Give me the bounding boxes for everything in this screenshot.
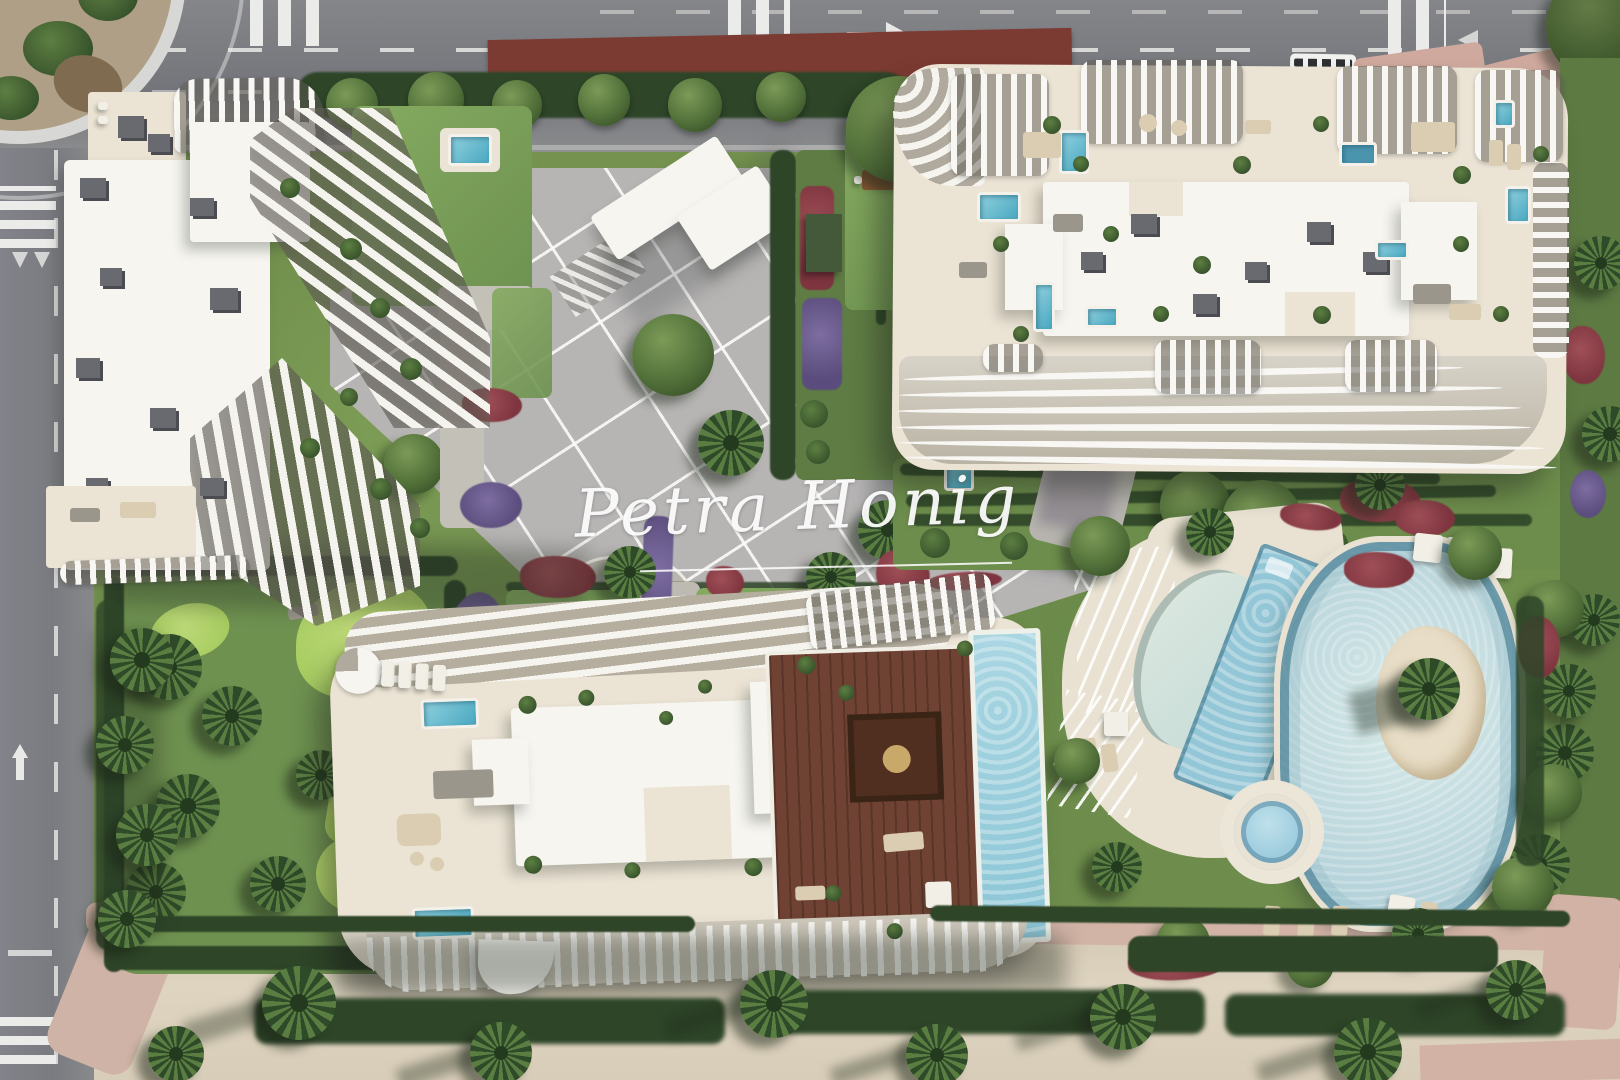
ac-unit <box>118 116 144 138</box>
hedge <box>1128 936 1498 972</box>
rooftop-pool <box>1505 186 1531 224</box>
tree <box>1448 526 1502 580</box>
lounge-chair <box>1139 114 1157 132</box>
palm-tree <box>1186 508 1234 556</box>
outdoor-sofa <box>1411 122 1455 152</box>
building-a <box>40 58 580 588</box>
ac-unit <box>1193 294 1217 314</box>
hedge <box>770 150 796 480</box>
roundabout-planting <box>0 76 39 120</box>
hedge <box>95 916 695 932</box>
terrace-plant <box>1533 146 1549 162</box>
ac-unit <box>210 288 238 310</box>
terrace-plant <box>1453 236 1469 252</box>
palm-tree <box>470 1022 532 1080</box>
outdoor-dining-set <box>433 769 494 799</box>
ac-unit <box>100 268 122 286</box>
wavy-balcony-line <box>895 424 1531 431</box>
garden-pool <box>448 134 492 166</box>
palm-tree <box>262 966 336 1040</box>
roundabout-planting <box>78 0 138 21</box>
balcony-pergola <box>1155 340 1261 394</box>
terrace-plant <box>300 438 320 458</box>
ac-unit <box>150 408 176 428</box>
chair <box>98 116 108 124</box>
terrace-plant <box>340 238 362 260</box>
palm-tree <box>110 628 174 692</box>
rooftop-pergola <box>1533 162 1569 358</box>
road-arrow <box>16 756 24 780</box>
ac-unit <box>1131 214 1157 234</box>
palm-tree <box>698 410 764 476</box>
lounger <box>432 665 446 691</box>
stop-line <box>8 950 52 956</box>
palm-tree <box>1092 842 1142 892</box>
hedge <box>1516 596 1544 866</box>
palm-tree <box>98 890 156 948</box>
rooftop-pergola <box>951 74 1049 176</box>
ac-unit <box>200 478 224 496</box>
ac-unit <box>1245 262 1267 280</box>
palm-tree <box>202 686 262 746</box>
terrace-plunge-pool <box>420 698 479 730</box>
outdoor-rug <box>1449 304 1481 320</box>
palm-tree <box>96 716 154 774</box>
lounger <box>415 663 429 689</box>
rooftop-pool <box>1033 282 1055 332</box>
lounge-chair <box>1171 120 1187 136</box>
parasol <box>1104 712 1128 736</box>
pavilion-table <box>882 745 911 774</box>
tree <box>668 78 722 132</box>
garden-cabin <box>806 214 842 272</box>
tree <box>578 74 630 126</box>
lounger <box>398 662 412 688</box>
terrace-plant <box>1453 166 1471 184</box>
shrub <box>806 440 830 464</box>
terrace-plant <box>1153 306 1169 322</box>
terrace-plant <box>410 518 430 538</box>
deck-lounger <box>795 886 825 901</box>
ac-unit <box>80 178 106 198</box>
terrace-plant <box>340 388 358 406</box>
ac-unit <box>76 358 100 378</box>
palm-tree <box>1334 1018 1402 1080</box>
terrace-plant <box>1073 156 1089 172</box>
ac-unit <box>1081 252 1103 270</box>
terrace-plant <box>1193 256 1211 274</box>
terrace-plant <box>280 178 300 198</box>
palm-tree <box>1486 960 1546 1020</box>
outdoor-table <box>1053 214 1083 232</box>
ground-terrace <box>46 486 196 568</box>
flower-bed-red <box>1344 552 1414 588</box>
chair <box>98 102 108 110</box>
lounger <box>1507 144 1521 170</box>
terrace-plant <box>1103 226 1119 242</box>
crosswalk <box>250 0 326 46</box>
road-arrow-head <box>12 744 28 758</box>
terrace-plant <box>400 358 422 380</box>
outdoor-sofa <box>396 813 441 847</box>
rooftop-main-pool <box>968 628 1051 944</box>
rooftop-pergola <box>1081 60 1243 144</box>
ac-unit <box>148 134 170 152</box>
chair <box>854 176 862 184</box>
parasol <box>925 881 952 908</box>
flower-bed-red <box>1395 500 1455 536</box>
roof-notch <box>1129 182 1183 216</box>
tree <box>632 314 714 396</box>
palm-tree <box>906 1024 968 1080</box>
garden-furniture <box>70 508 100 522</box>
terrace-plant <box>370 478 392 500</box>
palm-tree <box>116 804 178 866</box>
building-b <box>893 56 1583 496</box>
palm-tree <box>740 970 808 1038</box>
rooftop-pool <box>1085 306 1119 328</box>
rooftop-pool <box>977 192 1021 222</box>
watermark-text: Petra Honig <box>573 460 1021 553</box>
terrace-plant <box>1493 306 1509 322</box>
outdoor-table <box>959 262 987 278</box>
palm-tree <box>148 1026 204 1080</box>
rooftop-pool <box>1375 240 1409 260</box>
outdoor-table <box>1245 120 1271 134</box>
balcony-pergola <box>1345 340 1437 392</box>
flower-bed-purple <box>802 298 842 390</box>
promenade-pink-path <box>1419 1038 1620 1080</box>
terrace-plant <box>1043 116 1061 134</box>
parasol <box>1413 533 1444 564</box>
island-palm-tree <box>1398 658 1460 720</box>
tree <box>756 72 806 122</box>
balcony-pergola <box>983 344 1043 372</box>
outdoor-dining-set <box>1023 132 1061 158</box>
palm-tree <box>250 856 306 912</box>
pool-steps <box>1264 556 1294 580</box>
terrace-plant <box>1013 326 1029 342</box>
building-shadow <box>336 936 1066 992</box>
lounger <box>381 660 395 686</box>
deck-lounger <box>883 831 924 852</box>
palm-tree <box>1090 984 1156 1050</box>
terrace-plant <box>370 298 390 318</box>
rooftop-jacuzzi <box>1339 142 1377 166</box>
terrace-plant <box>1313 306 1331 324</box>
spa-pool <box>1234 794 1310 870</box>
aerial-residential-complex-render: Petra Honig <box>0 0 1620 1080</box>
yield-marking <box>12 252 28 268</box>
ac-unit <box>1307 222 1331 242</box>
roof-notch <box>644 785 733 862</box>
terrace-plant <box>993 236 1009 252</box>
garden-furniture <box>120 502 156 518</box>
ac-unit <box>190 198 214 216</box>
terrace-plant <box>1313 116 1329 132</box>
outdoor-table <box>1413 284 1451 304</box>
deck-pavilion <box>847 711 944 802</box>
lounger <box>1489 140 1503 166</box>
rooftop-pool <box>1493 100 1515 128</box>
terrace-plant <box>1233 156 1251 174</box>
shrub <box>800 400 828 428</box>
garden-lawn <box>492 288 552 398</box>
